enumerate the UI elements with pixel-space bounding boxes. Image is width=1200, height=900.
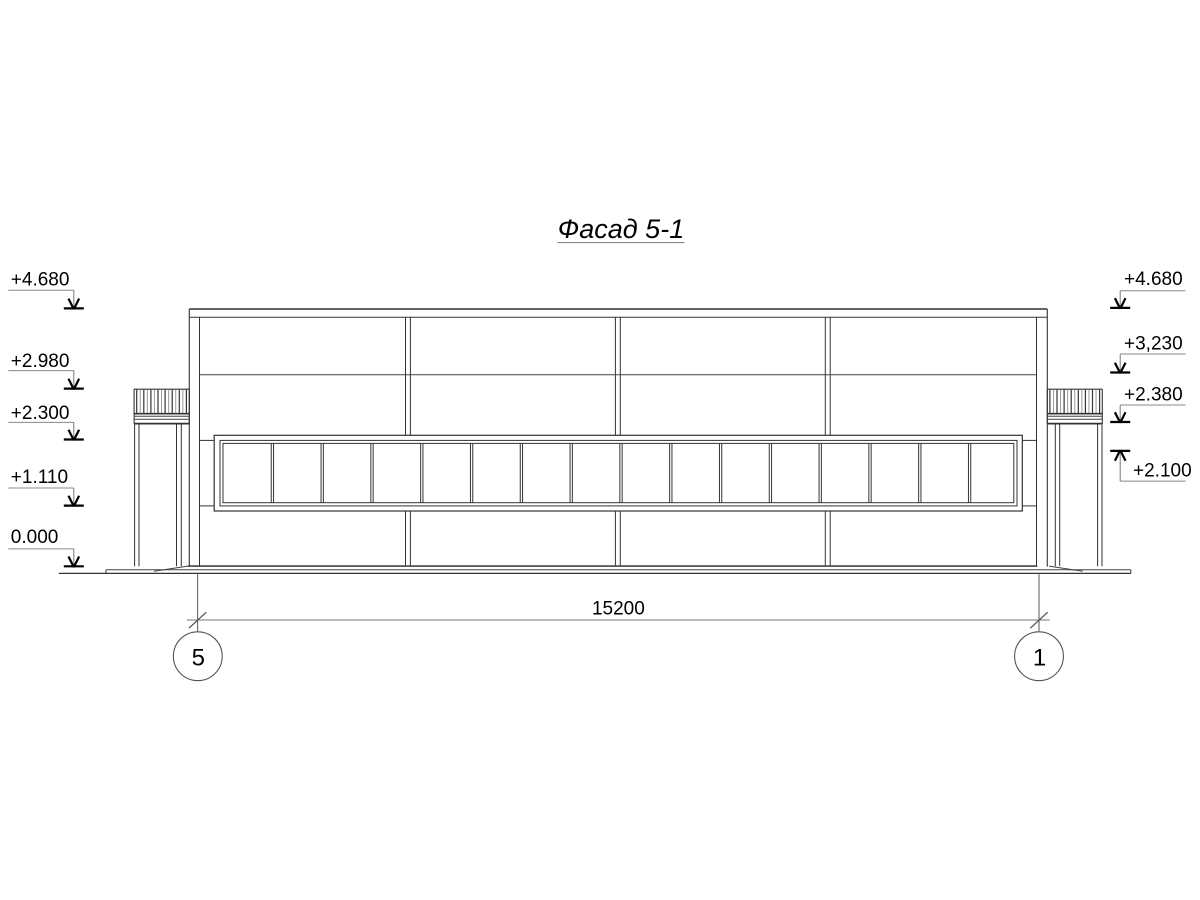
svg-text:1: 1 — [1033, 645, 1046, 672]
svg-text:0.000: 0.000 — [11, 527, 59, 548]
svg-text:15200: 15200 — [592, 599, 645, 620]
svg-text:Фасад 5-1: Фасад 5-1 — [558, 214, 684, 244]
svg-text:+4.680: +4.680 — [1124, 269, 1183, 290]
svg-text:+4.680: +4.680 — [11, 270, 70, 291]
svg-text:+2.380: +2.380 — [1124, 384, 1183, 405]
svg-text:+2.980: +2.980 — [11, 351, 70, 372]
svg-text:+2.100: +2.100 — [1133, 461, 1192, 482]
svg-text:5: 5 — [192, 645, 205, 672]
svg-text:+1.110: +1.110 — [11, 467, 68, 488]
svg-text:+2.300: +2.300 — [11, 403, 70, 424]
svg-text:+3,230: +3,230 — [1124, 334, 1183, 355]
